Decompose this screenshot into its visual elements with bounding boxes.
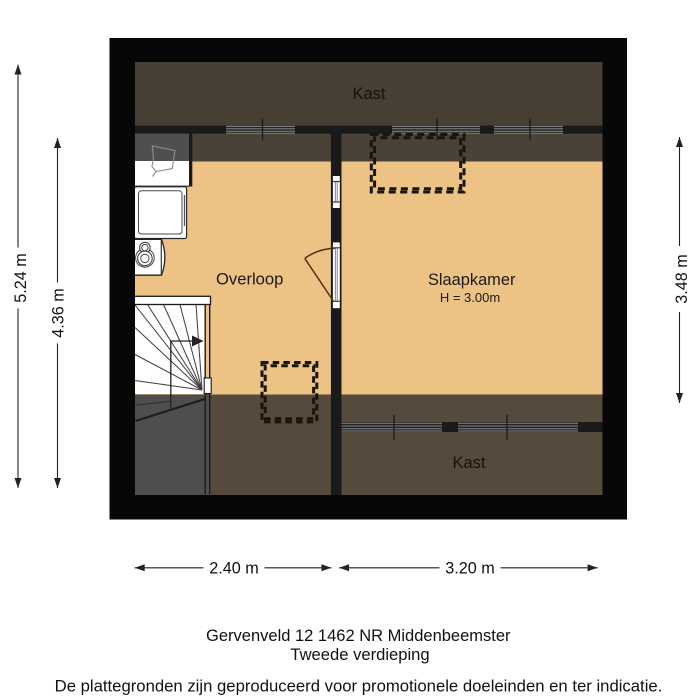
svg-text:Kast: Kast (352, 85, 385, 103)
svg-text:2.40 m: 2.40 m (209, 560, 259, 578)
svg-text:4.36 m: 4.36 m (49, 288, 67, 338)
svg-text:3.48 m: 3.48 m (673, 254, 691, 304)
svg-text:Gervenveld 12 1462 NR Middenbe: Gervenveld 12 1462 NR Middenbeemster (206, 627, 511, 645)
svg-text:Kast: Kast (452, 454, 485, 472)
svg-text:Overloop: Overloop (216, 269, 283, 288)
svg-text:3.20 m: 3.20 m (445, 560, 495, 578)
svg-text:5.24 m: 5.24 m (12, 253, 30, 303)
svg-text:H = 3.00m: H = 3.00m (440, 290, 500, 305)
svg-text:Tweede verdieping: Tweede verdieping (290, 645, 429, 664)
svg-text:De plattegronden zijn geproduc: De plattegronden zijn geproduceerd voor … (55, 677, 663, 696)
svg-text:Slaapkamer: Slaapkamer (428, 271, 516, 289)
